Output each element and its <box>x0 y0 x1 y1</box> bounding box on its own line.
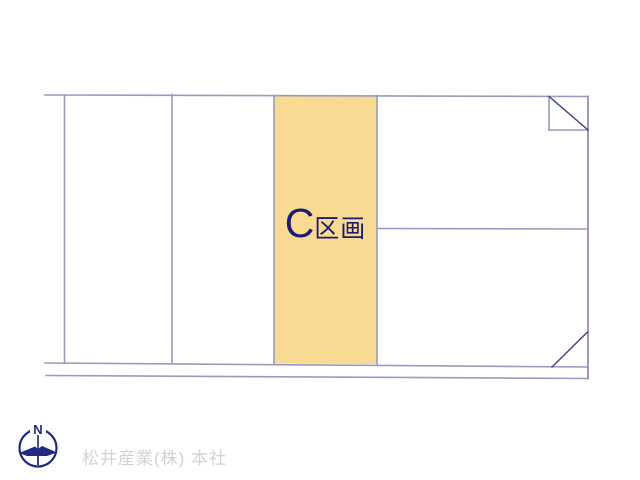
right-lot-divider <box>377 229 588 230</box>
company-watermark: 松井産業(株) 本社 <box>82 444 227 469</box>
parcel-letter: C <box>285 203 315 244</box>
top-boundary-line <box>45 95 588 97</box>
road-edge-lower-line <box>46 376 588 379</box>
parcel-c-label: C 区画 <box>274 203 377 251</box>
top-right-diagonal <box>549 96 588 130</box>
parcel-suffix: 区画 <box>314 217 366 243</box>
compass-north-label: N <box>33 422 42 437</box>
bottom-right-diagonal <box>552 332 588 367</box>
plot-map-canvas: C 区画 N 松井産業(株) 本社 <box>0 0 640 480</box>
compass-icon: N <box>13 421 65 473</box>
